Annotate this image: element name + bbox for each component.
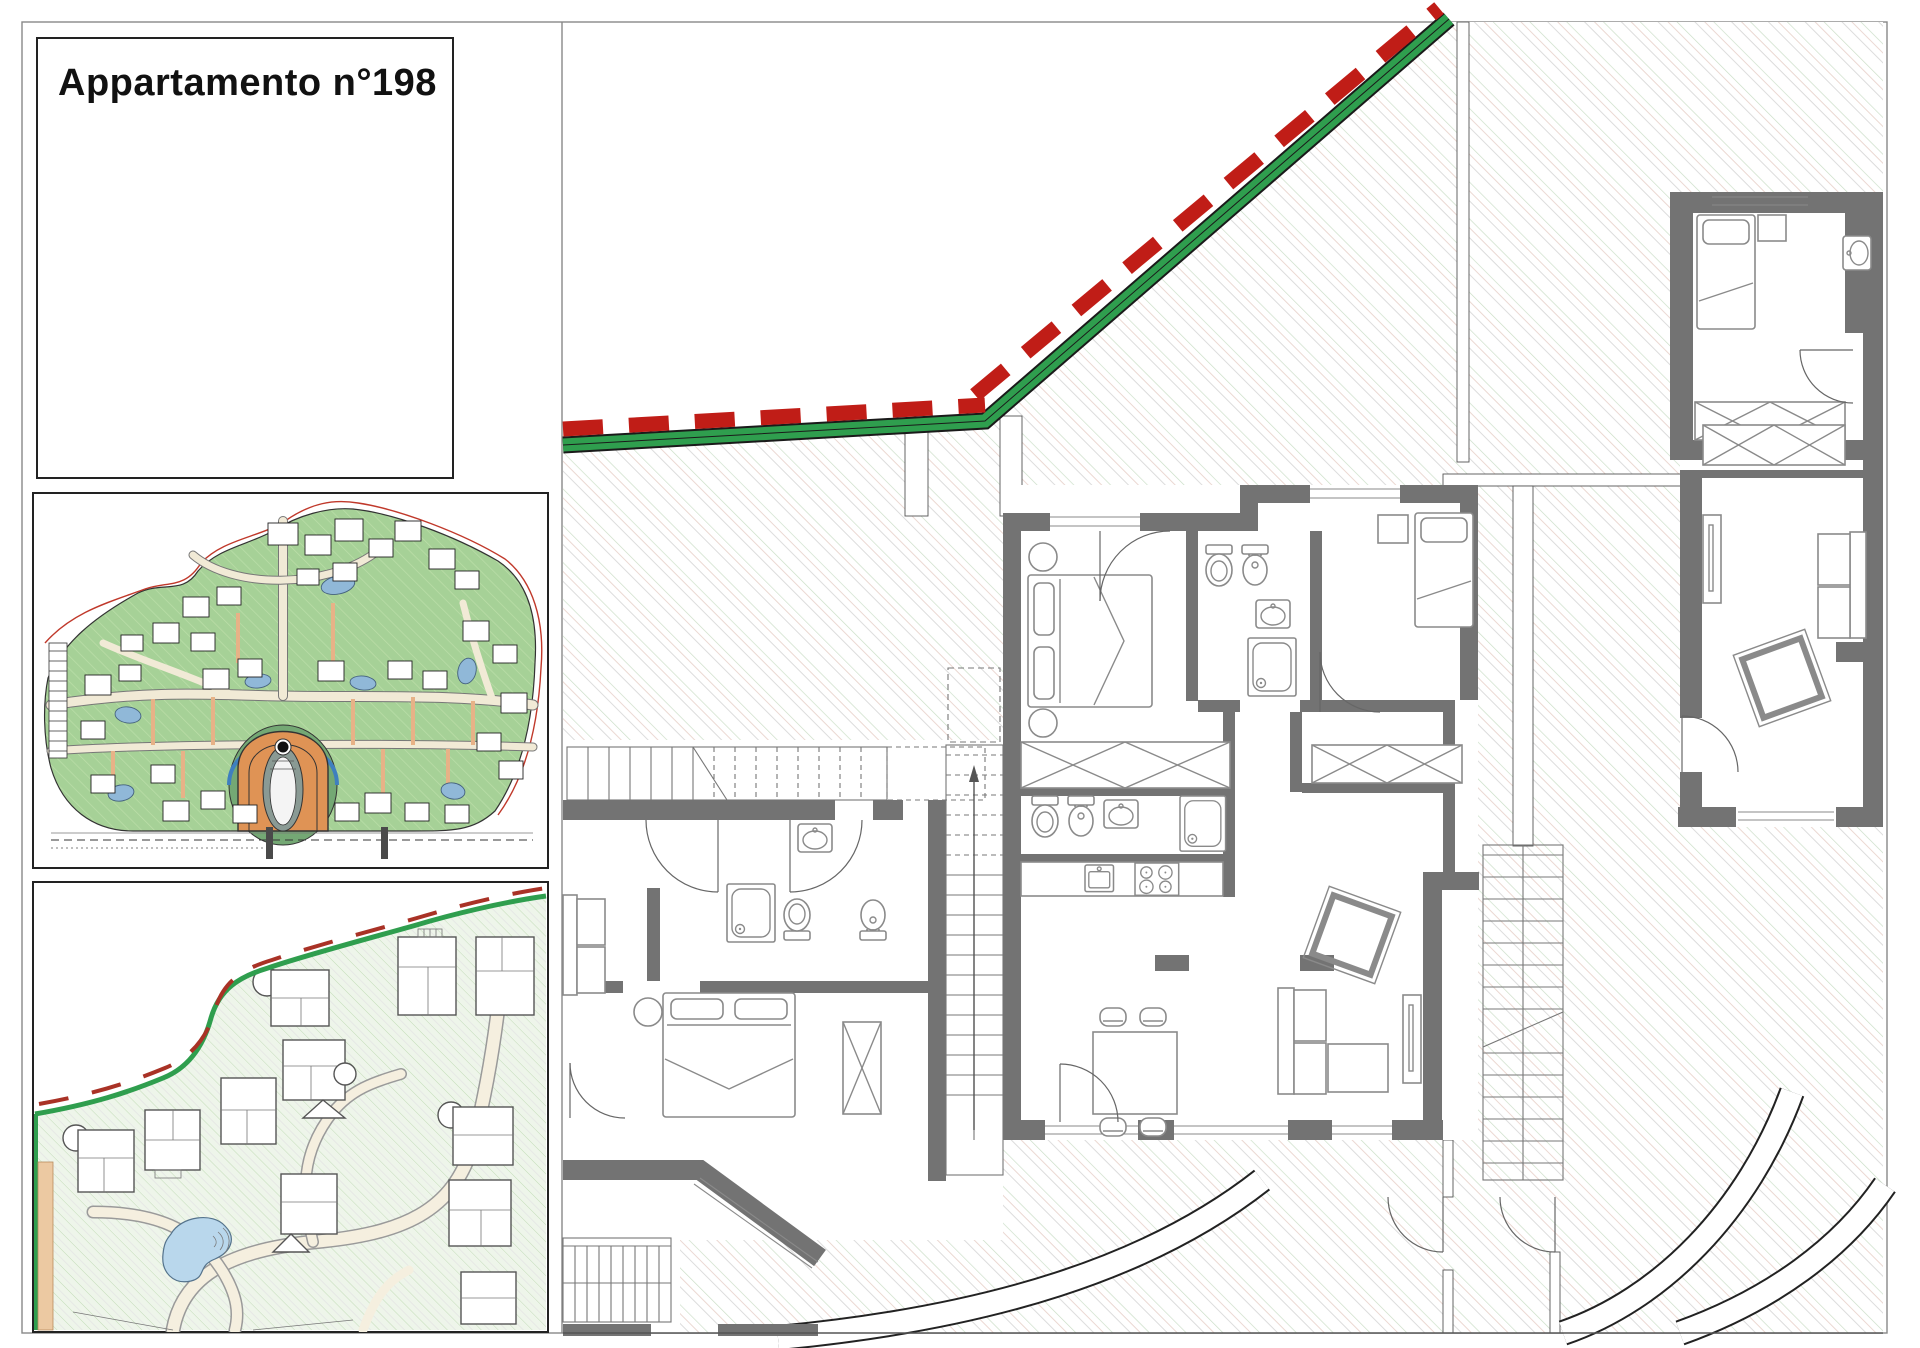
siteplan-map [35,888,546,1330]
siteplan-edge-strip [38,1162,53,1330]
kitchen [1021,862,1223,896]
sheet-svg: Appartamento n°198 [0,0,1920,1348]
nightstand [1378,515,1408,543]
sofa [1818,532,1866,638]
masterplan-map [45,502,542,859]
wardrobe [1312,745,1462,783]
sheet-title: Appartamento n°198 [58,62,437,104]
masterplan-panel [33,493,548,868]
title-panel: Appartamento n°198 [37,38,453,478]
kitchen-counter [1021,862,1223,896]
nightstand [1029,709,1057,737]
arch-dome-dot [278,742,289,753]
tv-bench [1703,515,1721,603]
drawing-sheet: Appartamento n°198 [0,0,1920,1348]
siteplan-panel [33,882,548,1332]
masterplan-central-arch [229,725,337,845]
tv-bench [1403,995,1421,1083]
pillar [1836,642,1866,662]
nightstand [1029,543,1057,571]
title-panel-frame [37,38,453,478]
masterplan-parking-strip [49,643,67,758]
main-floor-plan [563,8,1885,1338]
dining-table [1093,1032,1177,1114]
wardrobe [1021,742,1230,788]
wardrobe [1703,425,1845,465]
pillar [1155,955,1189,971]
nightstand [1758,215,1786,241]
